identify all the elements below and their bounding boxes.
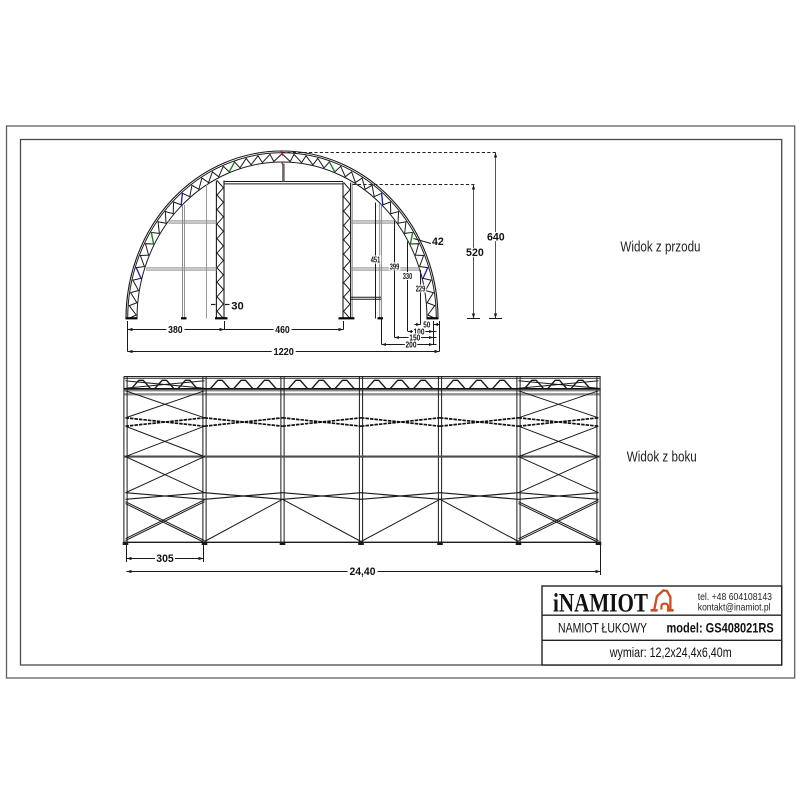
svg-text:24,40: 24,40 xyxy=(350,566,376,578)
svg-text:model: GS408021RS: model: GS408021RS xyxy=(667,620,774,635)
svg-text:42: 42 xyxy=(432,236,444,248)
svg-text:Widok z przodu: Widok z przodu xyxy=(620,239,700,256)
svg-text:380: 380 xyxy=(168,325,183,336)
svg-text:30: 30 xyxy=(231,301,243,313)
svg-text:wymiar: 12,2x24,4x6,40m: wymiar: 12,2x24,4x6,40m xyxy=(609,645,732,660)
svg-text:kontakt@inamiot.pl: kontakt@inamiot.pl xyxy=(698,603,771,614)
svg-text:Widok z boku: Widok z boku xyxy=(627,449,697,466)
svg-text:451: 451 xyxy=(371,256,381,265)
svg-text:tel. +48 604108143: tel. +48 604108143 xyxy=(698,592,773,603)
svg-text:520: 520 xyxy=(466,247,484,259)
svg-text:iNAMIOT: iNAMIOT xyxy=(553,588,648,618)
svg-text:1220: 1220 xyxy=(273,347,294,358)
svg-text:NAMIOT ŁUKOWY: NAMIOT ŁUKOWY xyxy=(558,620,647,635)
svg-text:460: 460 xyxy=(275,325,290,336)
svg-text:200: 200 xyxy=(406,341,417,350)
svg-text:305: 305 xyxy=(156,553,174,565)
svg-text:399: 399 xyxy=(390,262,400,271)
svg-text:330: 330 xyxy=(403,272,413,281)
svg-text:640: 640 xyxy=(487,231,505,243)
svg-text:229: 229 xyxy=(416,285,426,294)
